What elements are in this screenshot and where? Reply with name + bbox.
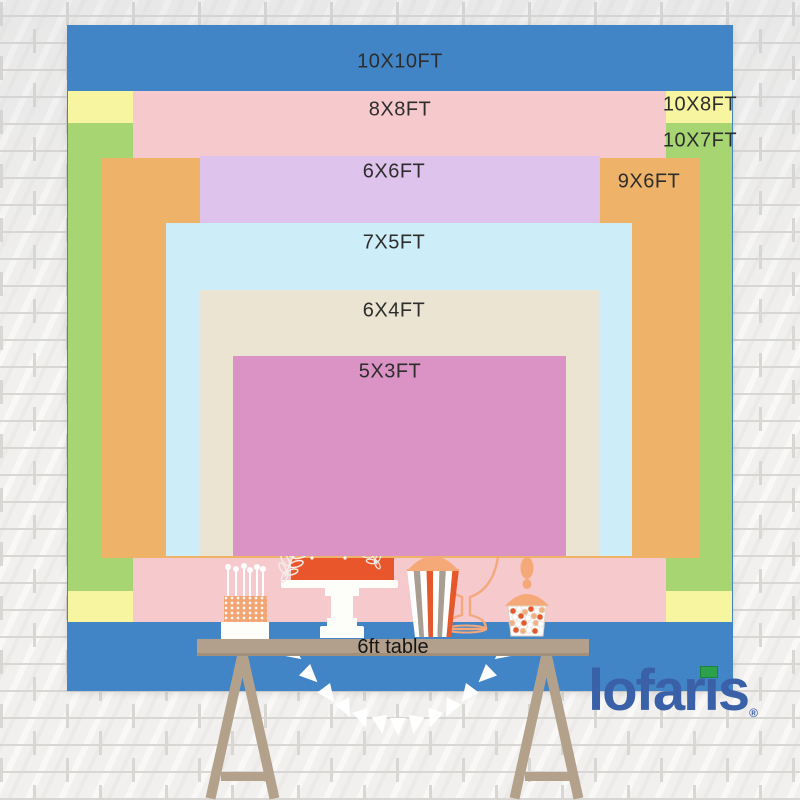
size-label-10x10: 10X10FT <box>357 51 443 74</box>
mini-cake-base <box>221 622 269 639</box>
cake-stand-stem <box>331 596 353 618</box>
pennant-flag-icon <box>390 718 406 736</box>
backdrop-size-chart: 10X10FT 8X8FT 10X8FT 10X7FT 6X6FT 9X6FT … <box>67 25 733 691</box>
pennant-flag-icon <box>353 708 374 730</box>
candle-icon <box>262 572 264 596</box>
table-leg-crossbar <box>221 772 266 781</box>
dessert-table-top: 6ft table <box>197 639 589 656</box>
size-label-10x8: 10X8FT <box>663 94 737 117</box>
candle-icon <box>249 573 251 596</box>
pennant-flag-icon <box>406 715 425 735</box>
size-label-8x8: 8X8FT <box>369 99 432 122</box>
registered-mark: ® <box>749 706 758 720</box>
cake-stand-plate <box>281 580 398 588</box>
brand-logo: lofaris® <box>588 662 758 720</box>
pennant-flag-icon <box>439 697 462 720</box>
size-label-7x5: 7X5FT <box>363 232 426 255</box>
cake-stand-flare <box>327 618 357 626</box>
pennant-flag-icon <box>422 708 443 730</box>
backdrop-layer-5x3 <box>233 356 566 556</box>
brand-logo-text: lofaris <box>588 658 748 723</box>
table-size-label: 6ft table <box>357 636 428 659</box>
size-label-6x4: 6X4FT <box>363 300 426 323</box>
logo-i-accent-block <box>700 666 718 678</box>
size-label-10x7: 10X7FT <box>663 130 737 153</box>
size-label-5x3: 5X3FT <box>359 361 422 384</box>
candle-icon <box>256 570 258 596</box>
pennant-flag-icon <box>335 697 358 720</box>
candle-icon <box>227 570 229 596</box>
size-label-6x6: 6X6FT <box>363 161 426 184</box>
mini-cake-sprinkle-layer <box>224 596 267 622</box>
candle-icon <box>235 572 237 596</box>
candle-icon <box>243 569 245 596</box>
pennant-flag-icon <box>371 715 390 735</box>
cake-stand-neck <box>325 588 359 596</box>
size-label-9x6: 9X6FT <box>618 171 681 194</box>
product-scene: 10X10FT 8X8FT 10X8FT 10X7FT 6X6FT 9X6FT … <box>0 0 800 800</box>
table-leg-crossbar <box>525 772 570 781</box>
